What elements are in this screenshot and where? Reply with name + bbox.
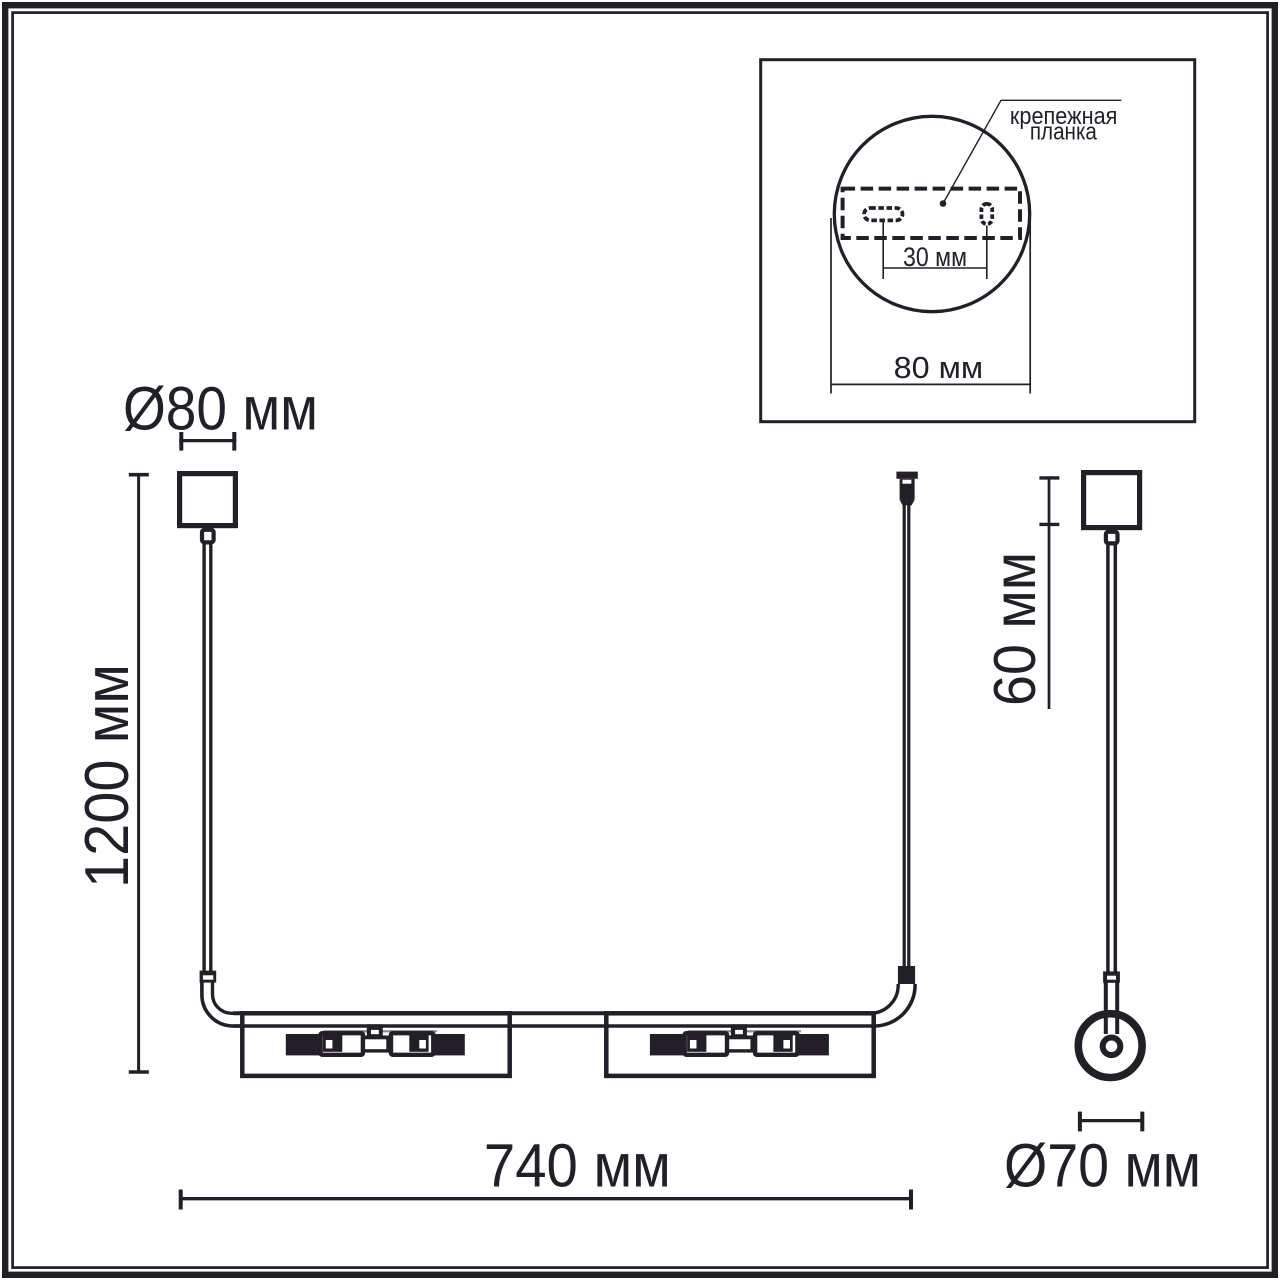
svg-text:80 мм: 80 мм — [894, 350, 984, 385]
svg-text:Ø70 мм: Ø70 мм — [1004, 1132, 1201, 1200]
svg-text:планка: планка — [1030, 119, 1098, 146]
svg-text:Ø80 мм: Ø80 мм — [123, 375, 318, 443]
svg-text:30 мм: 30 мм — [903, 242, 967, 272]
svg-text:60 мм: 60 мм — [982, 552, 1048, 706]
svg-text:740 мм: 740 мм — [484, 1132, 671, 1200]
svg-text:1200 мм: 1200 мм — [73, 664, 142, 888]
